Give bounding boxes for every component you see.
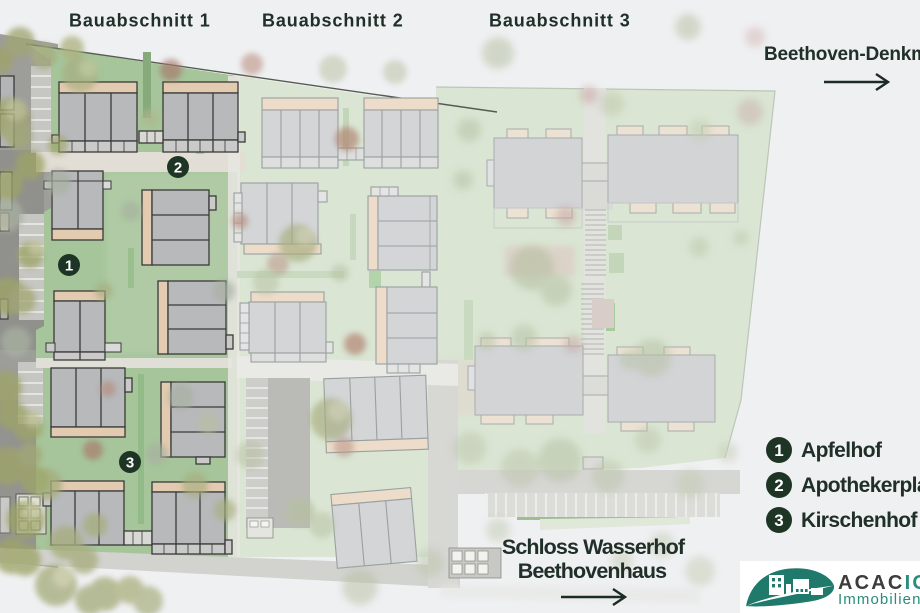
svg-text:Kirschenhof: Kirschenhof xyxy=(801,509,919,532)
svg-text:Schloss Wasserhof: Schloss Wasserhof xyxy=(502,535,686,559)
svg-text:3: 3 xyxy=(126,455,134,472)
svg-text:2: 2 xyxy=(174,160,182,177)
svg-text:Bauabschnitt 3: Bauabschnitt 3 xyxy=(489,11,631,31)
svg-text:3: 3 xyxy=(774,511,783,530)
svg-text:Immobilien: Immobilien xyxy=(838,591,920,608)
svg-text:1: 1 xyxy=(65,258,73,275)
svg-text:Beethoven-Denkmal: Beethoven-Denkmal xyxy=(764,44,920,65)
svg-text:2: 2 xyxy=(774,476,783,495)
svg-text:Bauabschnitt 2: Bauabschnitt 2 xyxy=(262,11,404,31)
svg-text:Apfelhof: Apfelhof xyxy=(801,439,883,462)
svg-text:Apothekerplatz: Apothekerplatz xyxy=(801,474,920,497)
svg-text:1: 1 xyxy=(774,441,783,460)
svg-text:Beethovenhaus: Beethovenhaus xyxy=(518,559,667,583)
svg-text:Bauabschnitt 1: Bauabschnitt 1 xyxy=(69,11,211,31)
